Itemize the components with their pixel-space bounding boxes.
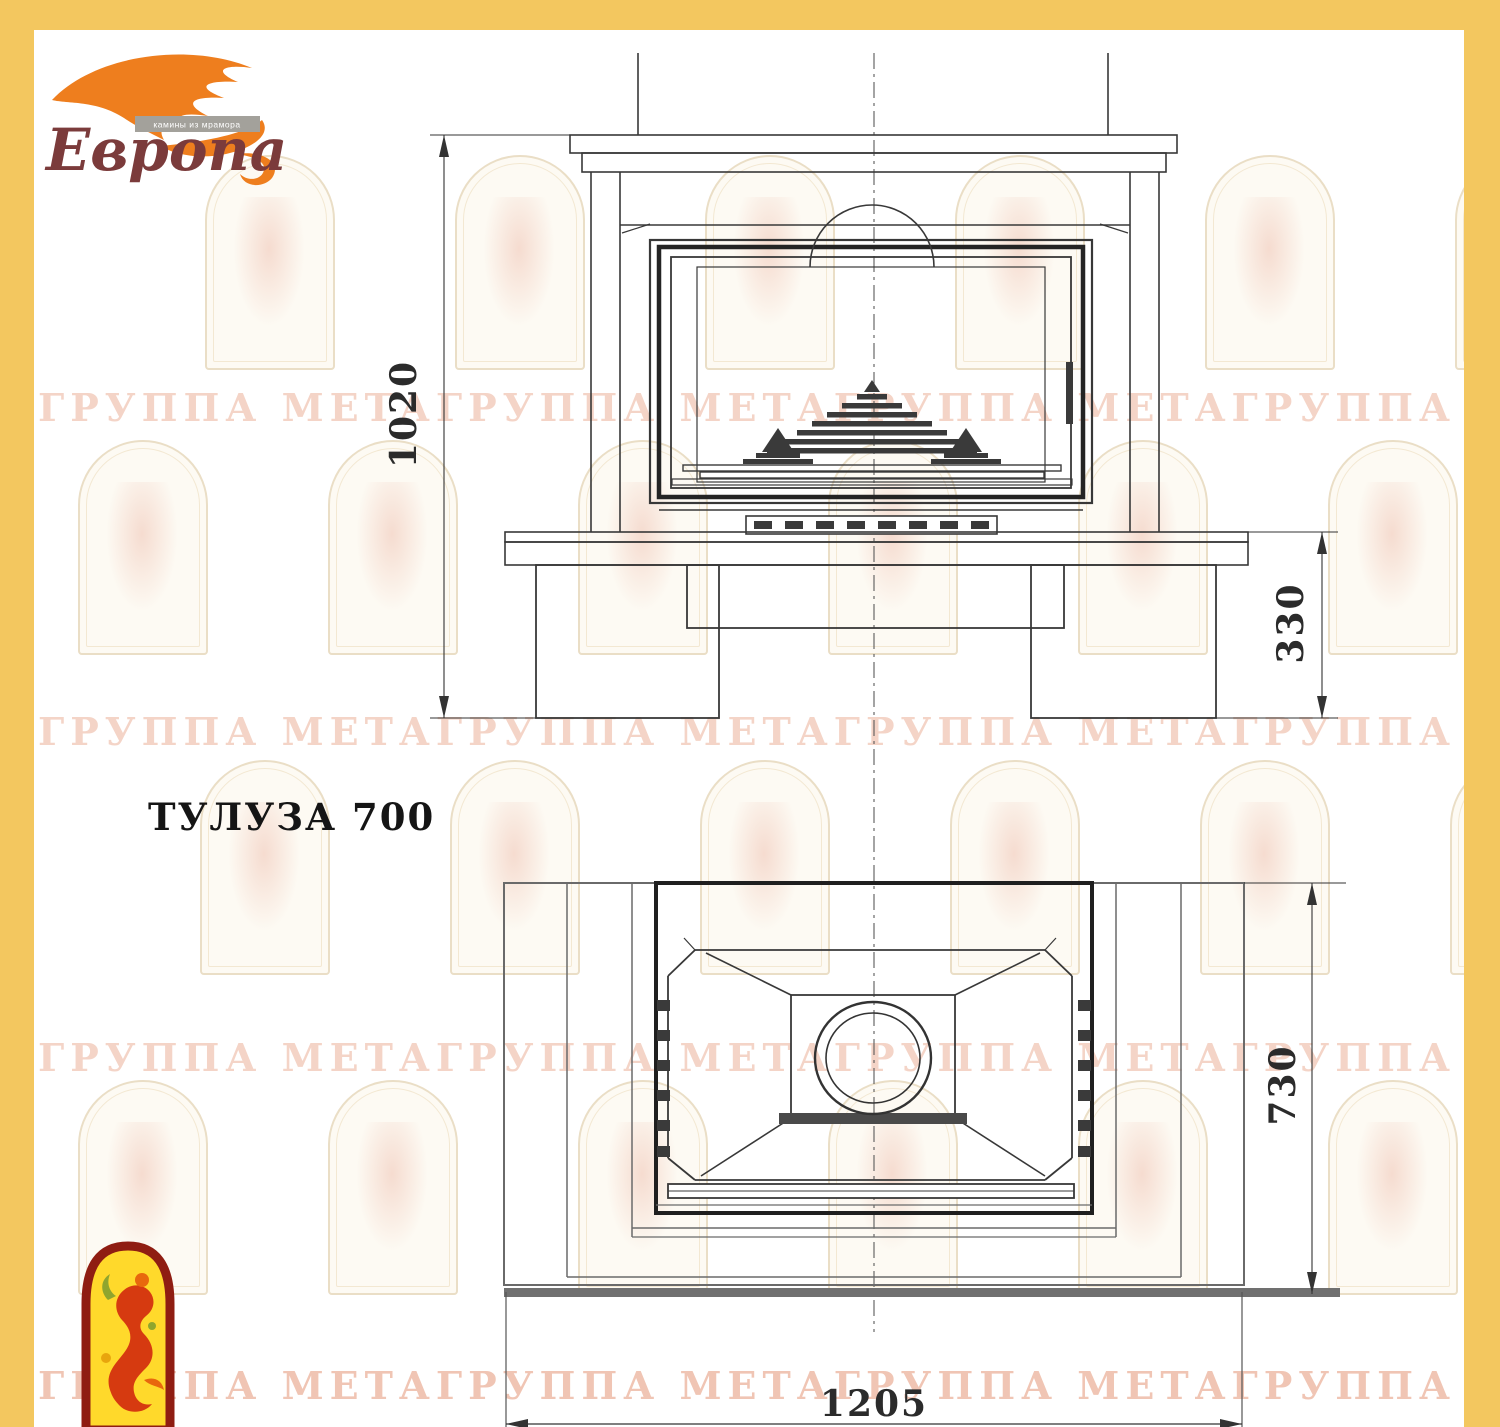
dim-base-label: 330 xyxy=(1271,563,1311,683)
base-pedestal xyxy=(536,565,1216,718)
plan-view xyxy=(504,883,1346,1427)
page-border-top xyxy=(0,0,1500,30)
firebird-emblem xyxy=(78,1238,178,1427)
plan-shadow-line xyxy=(504,1288,1340,1297)
dim-height-label: 1020 xyxy=(384,354,424,474)
dim-width-label: 1205 xyxy=(794,1384,954,1424)
flue-opening xyxy=(815,1002,931,1114)
page: ГРУППА МЕТАГРУППА МЕТАГРУППА МЕТАГРУППА … xyxy=(0,0,1500,1427)
vent-grille xyxy=(659,510,1083,534)
plan-firebox-interior xyxy=(668,938,1072,1180)
brand-name: Европа xyxy=(44,116,287,184)
dim-depth-label: 730 xyxy=(1263,1025,1303,1145)
plan-front-strip xyxy=(656,1184,1092,1205)
flame-icon: камины из мрамора Европа xyxy=(40,42,290,192)
firebox-frame xyxy=(650,240,1092,503)
page-border-left xyxy=(0,0,34,1427)
front-view xyxy=(430,53,1338,718)
dim-height-1020 xyxy=(430,135,570,718)
hearth-shelf xyxy=(505,532,1248,565)
firebird-icon xyxy=(78,1238,178,1427)
page-border-right xyxy=(1464,0,1500,1427)
brand-logo: камины из мрамора Европа xyxy=(40,42,290,192)
door-handle xyxy=(1066,362,1073,424)
model-title: ТУЛУЗА 700 xyxy=(148,795,435,839)
fire-grate xyxy=(672,380,1072,485)
chimney-lines xyxy=(638,53,1108,135)
technical-drawing xyxy=(0,0,1500,1427)
